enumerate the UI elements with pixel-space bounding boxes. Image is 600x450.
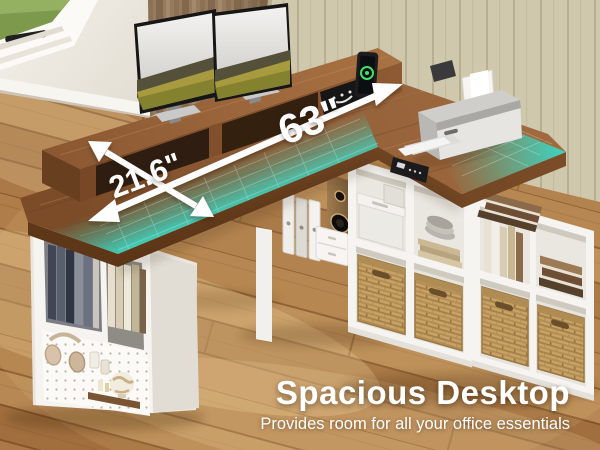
- shelf-bottle: [105, 383, 109, 392]
- product-image: 63" 21.6" Spacious Desktop Provides room…: [0, 0, 600, 450]
- wicker-basket: [538, 305, 584, 382]
- shelf-bottle: [98, 380, 103, 391]
- caption-title: Spacious Desktop: [260, 374, 570, 412]
- caption-subtitle: Provides room for all your office essent…: [260, 415, 570, 434]
- cabinet-side: [150, 252, 199, 413]
- desk-leg-panel: [256, 227, 272, 342]
- wicker-basket: [358, 255, 405, 334]
- wicker-basket: [482, 287, 528, 366]
- monitor-right: [212, 3, 292, 104]
- caption-block: Spacious Desktop Provides room for all y…: [260, 374, 570, 434]
- wicker-basket: [415, 273, 462, 350]
